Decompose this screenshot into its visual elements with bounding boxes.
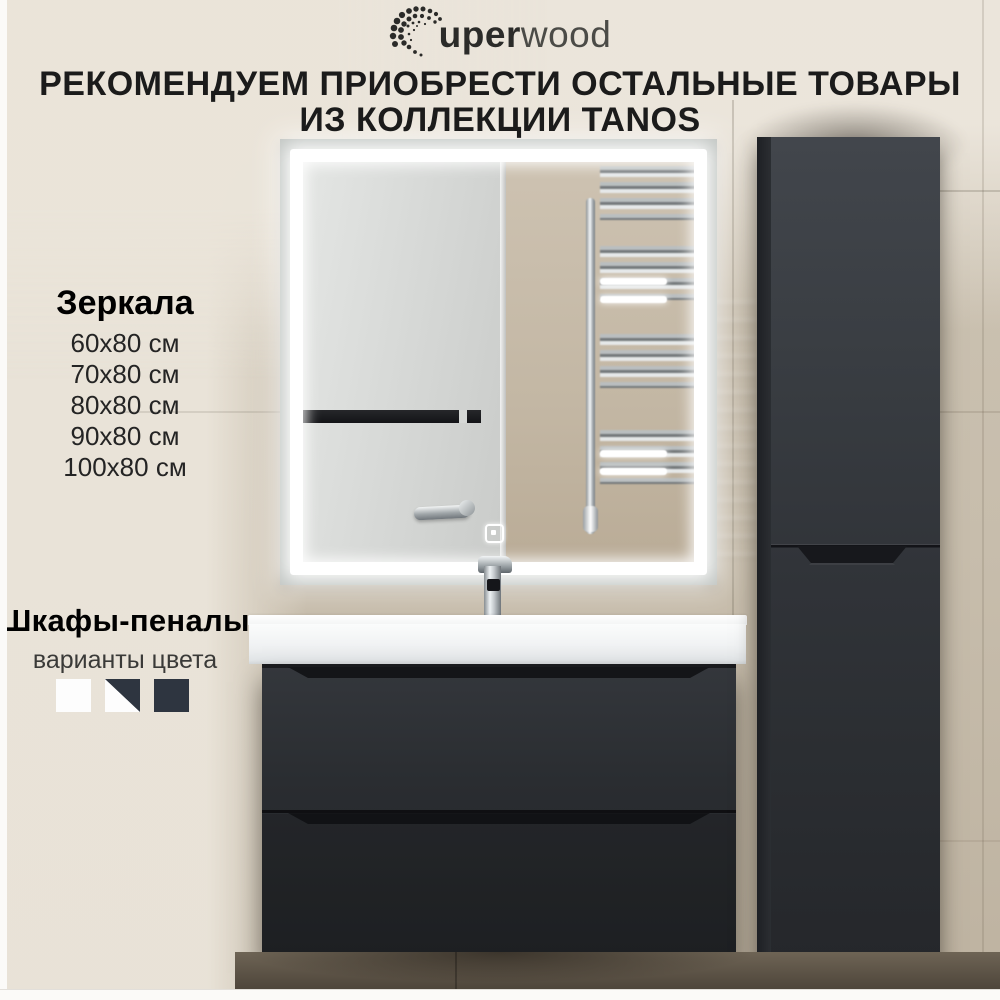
color-swatch-graphite — [154, 679, 189, 712]
tall-cabinet-handle-notch — [757, 137, 940, 959]
led-light-ring — [290, 149, 707, 575]
card-bottom-margin — [0, 989, 1000, 1000]
mirror-size-item: 100x80 см — [0, 452, 250, 483]
cabinets-section-subtitle: варианты цвета — [0, 646, 250, 675]
tall-pencil-cabinet — [757, 137, 940, 959]
product-card: uperwood РЕКОМЕНДУЕМ ПРИОБРЕСТИ ОСТАЛЬНЫ… — [0, 0, 1000, 1000]
vanity-drawer-grooves — [262, 664, 736, 955]
color-swatch-white-graphite — [105, 679, 140, 712]
mirror-size-item: 60x80 см — [0, 328, 250, 359]
card-left-margin — [0, 0, 7, 1000]
brand-logo: uperwood — [0, 6, 1000, 62]
mirror-size-item: 70x80 см — [0, 359, 250, 390]
tile-seam — [940, 411, 1000, 413]
heading-line1: РЕКОМЕНДУЕМ ПРИОБРЕСТИ ОСТАЛЬНЫЕ ТОВАРЫ — [0, 66, 1000, 102]
tile-seam — [940, 840, 1000, 842]
floor-seam — [455, 952, 457, 990]
vanity-floor-shadow — [250, 952, 750, 982]
brand-name: uperwood — [439, 14, 612, 56]
mirror-size-item: 90x80 см — [0, 421, 250, 452]
heading-line2: ИЗ КОЛЛЕКЦИИ TANOS — [0, 102, 1000, 138]
mirror-sizes-list: 60x80 см 70x80 см 80x80 см 90x80 см 100x… — [0, 328, 250, 483]
led-mirror — [280, 139, 717, 585]
vanity-cabinet — [262, 664, 736, 955]
recommendation-heading: РЕКОМЕНДУЕМ ПРИОБРЕСТИ ОСТАЛЬНЫЕ ТОВАРЫ … — [0, 66, 1000, 138]
cabinets-section-title: Шкафы-пеналы — [0, 603, 250, 639]
washbasin-front — [249, 624, 746, 664]
tile-seam — [940, 190, 1000, 192]
color-swatch-white — [56, 679, 91, 712]
wall-reflection-stripes — [712, 300, 756, 560]
faucet-aerator — [487, 579, 500, 591]
brand-name-bold: uper — [439, 14, 521, 55]
mirrors-section-title: Зеркала — [0, 284, 250, 323]
tile-seam — [982, 0, 984, 952]
mirror-size-item: 80x80 см — [0, 390, 250, 421]
color-swatches — [56, 679, 189, 712]
brand-name-light: wood — [521, 14, 611, 55]
